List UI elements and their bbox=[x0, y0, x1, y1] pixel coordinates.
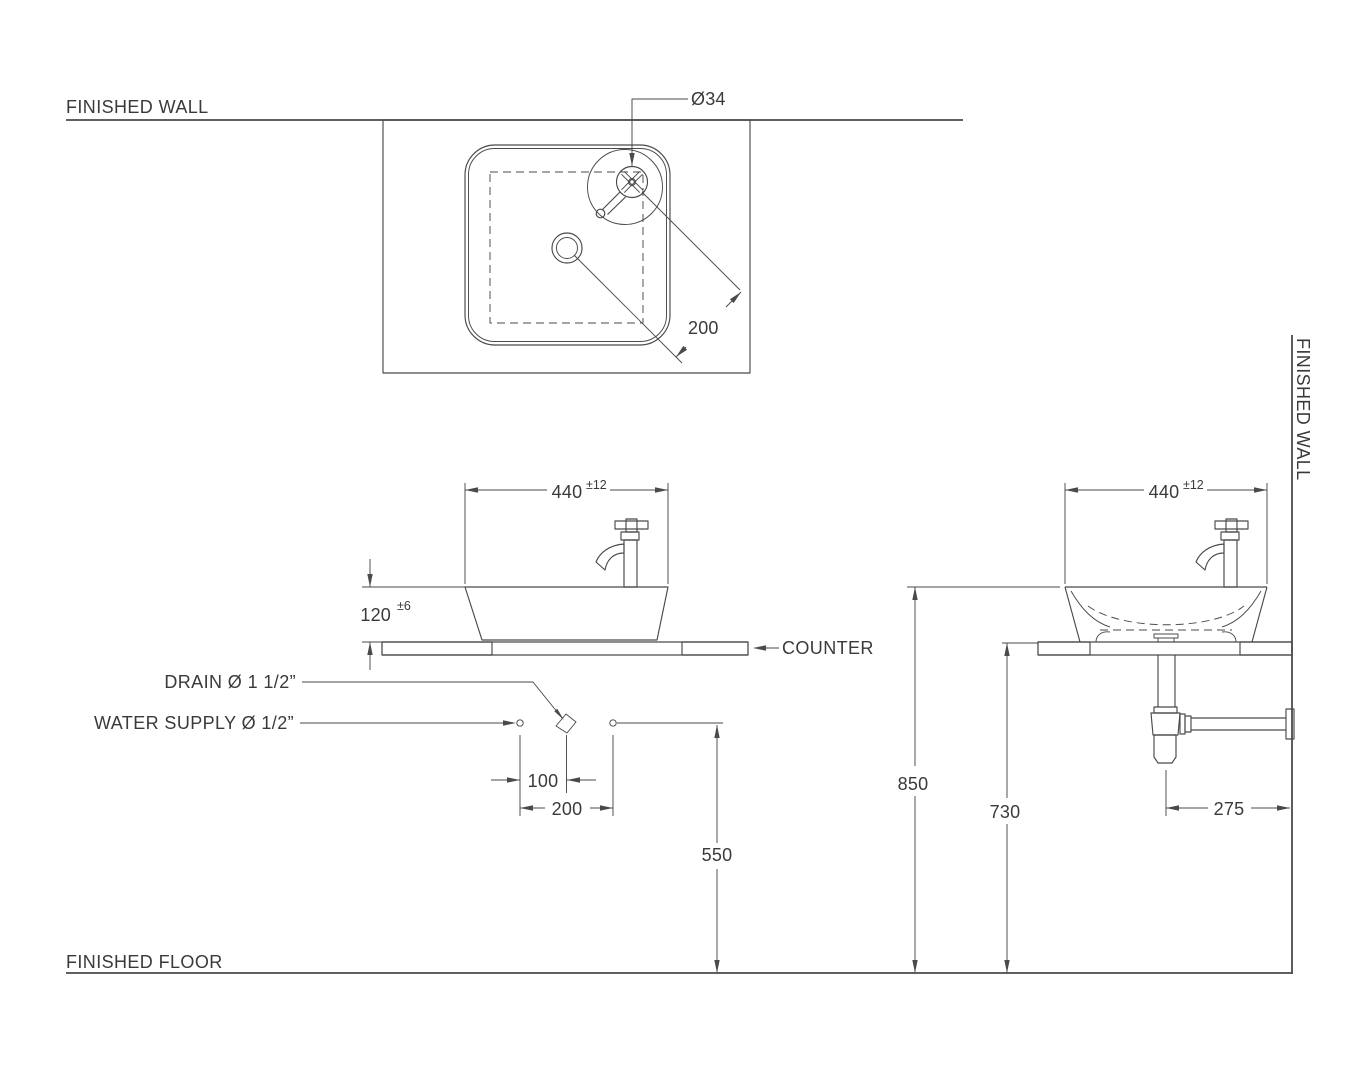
counter-stone-right bbox=[682, 642, 748, 655]
water-supply-label: WATER SUPPLY Ø 1/2” bbox=[94, 713, 294, 733]
counter-slab bbox=[1038, 642, 1292, 655]
finished-wall-top-label: FINISHED WALL bbox=[66, 97, 209, 117]
finished-floor: FINISHED FLOOR bbox=[66, 952, 1292, 973]
counter-height-value: 730 bbox=[990, 802, 1021, 822]
arrowhead bbox=[367, 574, 372, 587]
finished-wall-top: FINISHED WALL bbox=[66, 97, 963, 120]
arrowhead bbox=[1254, 487, 1267, 492]
water-supply-point-left bbox=[517, 720, 523, 726]
faucet-lever-tip bbox=[596, 209, 605, 218]
arrowhead bbox=[912, 587, 917, 600]
supply-height-value: 550 bbox=[702, 845, 733, 865]
basin-outer-rim bbox=[465, 145, 670, 345]
bowl-curve-left bbox=[1071, 591, 1110, 627]
basin-width-tolerance: ±12 bbox=[586, 478, 607, 492]
faucet-side-view bbox=[1196, 519, 1248, 587]
counter-front-view bbox=[382, 642, 748, 655]
arrowhead bbox=[503, 720, 516, 725]
arrowhead bbox=[367, 642, 372, 655]
front-view: 440 ±12 120 ±6 bbox=[94, 478, 874, 973]
counter-stone-left bbox=[1038, 642, 1090, 655]
basin-side-outline bbox=[1065, 587, 1267, 642]
arrowhead bbox=[714, 725, 719, 738]
faucet-collar bbox=[1221, 532, 1239, 540]
arrowhead bbox=[1166, 805, 1179, 810]
drain-stub bbox=[556, 714, 576, 733]
bowl-curve-right bbox=[1222, 591, 1261, 627]
sink-installation-drawing: FINISHED WALL Ø34 bbox=[0, 0, 1350, 1080]
faucet-body bbox=[1224, 540, 1237, 587]
basin-hidden-bowl bbox=[490, 172, 643, 323]
arrowhead bbox=[567, 777, 580, 782]
counter-stone-right bbox=[1240, 642, 1292, 655]
drain-leader bbox=[302, 682, 562, 718]
faucet-lever bbox=[602, 192, 620, 210]
arrowhead bbox=[520, 805, 533, 810]
pipe-ring bbox=[1180, 714, 1185, 734]
basin-foot-left bbox=[1096, 632, 1110, 642]
faucet-top-view bbox=[588, 150, 663, 225]
rim-height-value: 850 bbox=[898, 774, 929, 794]
water-supply-label-group: WATER SUPPLY Ø 1/2” bbox=[94, 713, 516, 733]
trap-nut bbox=[1154, 707, 1177, 713]
basin-depth-value: 440 bbox=[1149, 482, 1180, 502]
trap-offset-value: 275 bbox=[1214, 799, 1245, 819]
finished-floor-label: FINISHED FLOOR bbox=[66, 952, 223, 972]
arrowhead bbox=[1004, 643, 1009, 656]
finished-wall-right: FINISHED WALL bbox=[1292, 335, 1313, 974]
drain-label: DRAIN Ø 1 1/2” bbox=[164, 672, 296, 692]
water-supply-point-right bbox=[610, 720, 616, 726]
dim-supply-spacing: 100 200 bbox=[491, 735, 613, 819]
basin-width-value: 440 bbox=[552, 482, 583, 502]
faucet-cross-handle bbox=[1215, 521, 1248, 529]
finished-wall-right-label: FINISHED WALL bbox=[1293, 338, 1313, 481]
extension-line bbox=[642, 192, 740, 290]
faucet-cross-handle bbox=[615, 521, 648, 529]
faucet-hole-diameter-value: Ø34 bbox=[691, 89, 726, 109]
trap-body bbox=[1151, 713, 1180, 735]
dim-supply-height: 550 bbox=[617, 723, 732, 973]
basin-foot-right bbox=[1222, 632, 1236, 642]
faucet-spout bbox=[1196, 544, 1224, 570]
basin-inner-rim bbox=[469, 149, 667, 342]
faucet-body bbox=[624, 540, 637, 587]
pipe-ring bbox=[1185, 716, 1191, 732]
arrowhead bbox=[600, 805, 613, 810]
top-view: Ø34 200 bbox=[383, 89, 750, 373]
counter-label: COUNTER bbox=[782, 638, 874, 658]
basin-height-tolerance: ±6 bbox=[397, 599, 411, 613]
hidden-bowl-curve bbox=[1088, 606, 1244, 625]
drain-to-faucet-value: 200 bbox=[688, 318, 719, 338]
basin-depth-tolerance: ±12 bbox=[1183, 478, 1204, 492]
supply-spacing-value: 200 bbox=[552, 799, 583, 819]
extension-line bbox=[574, 255, 682, 363]
counter-stone-left bbox=[382, 642, 492, 655]
arrowhead bbox=[1004, 960, 1009, 973]
faucet-collar bbox=[621, 532, 639, 540]
side-view: 440 ±12 bbox=[898, 478, 1294, 973]
bottle-trap bbox=[1151, 655, 1294, 763]
faucet-swing-arc bbox=[588, 150, 663, 225]
basin-front-outline bbox=[465, 587, 668, 640]
dim-counter-height: 730 bbox=[990, 643, 1038, 973]
dim-basin-height: 120 ±6 bbox=[360, 559, 465, 670]
trap-cup bbox=[1154, 735, 1176, 763]
counter-side-view bbox=[1038, 642, 1292, 655]
technical-drawing-canvas: FINISHED WALL Ø34 bbox=[0, 0, 1350, 1080]
counter-label-group: COUNTER bbox=[753, 638, 874, 658]
dim-trap-offset: 275 bbox=[1166, 770, 1290, 819]
popup-drain-body bbox=[1158, 638, 1174, 642]
arrowhead bbox=[507, 777, 520, 782]
arrowhead bbox=[714, 960, 719, 973]
arrowhead bbox=[655, 487, 668, 492]
arrowhead bbox=[465, 487, 478, 492]
drain-to-supply-value: 100 bbox=[528, 771, 559, 791]
basin-height-value: 120 bbox=[360, 605, 391, 625]
faucet-spout bbox=[596, 544, 624, 570]
arrowhead bbox=[1065, 487, 1078, 492]
counter-slab bbox=[382, 642, 748, 655]
faucet-hole-leader bbox=[632, 99, 688, 166]
arrowhead bbox=[629, 153, 634, 166]
faucet-front-view bbox=[596, 519, 648, 587]
arrowhead bbox=[1277, 805, 1290, 810]
popup-drain-flange bbox=[1154, 634, 1178, 638]
arrowhead bbox=[912, 960, 917, 973]
dim-rim-height: 850 bbox=[898, 587, 1060, 973]
arrowhead bbox=[753, 645, 766, 650]
